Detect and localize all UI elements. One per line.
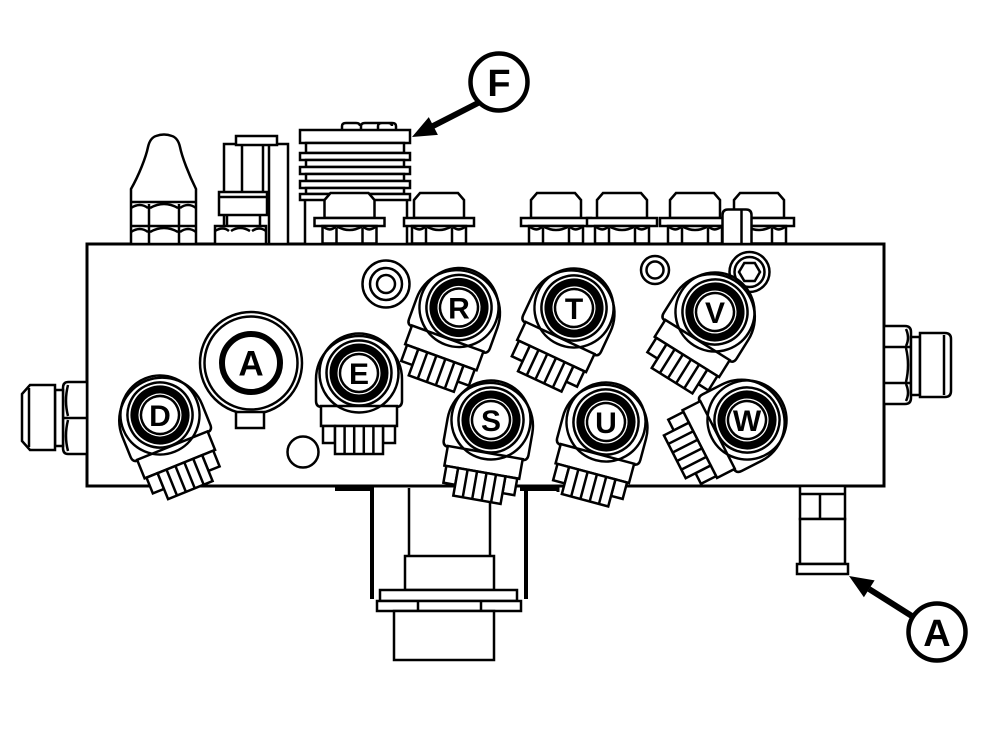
svg-text:W: W xyxy=(733,405,762,438)
svg-text:A: A xyxy=(238,345,263,384)
svg-text:D: D xyxy=(149,400,171,433)
svg-text:S: S xyxy=(481,405,501,438)
svg-text:E: E xyxy=(349,358,369,391)
svg-text:A: A xyxy=(923,613,950,655)
svg-text:U: U xyxy=(595,407,617,440)
svg-text:F: F xyxy=(487,63,510,105)
svg-text:V: V xyxy=(705,297,725,330)
svg-text:R: R xyxy=(448,293,470,326)
svg-text:T: T xyxy=(565,293,583,326)
